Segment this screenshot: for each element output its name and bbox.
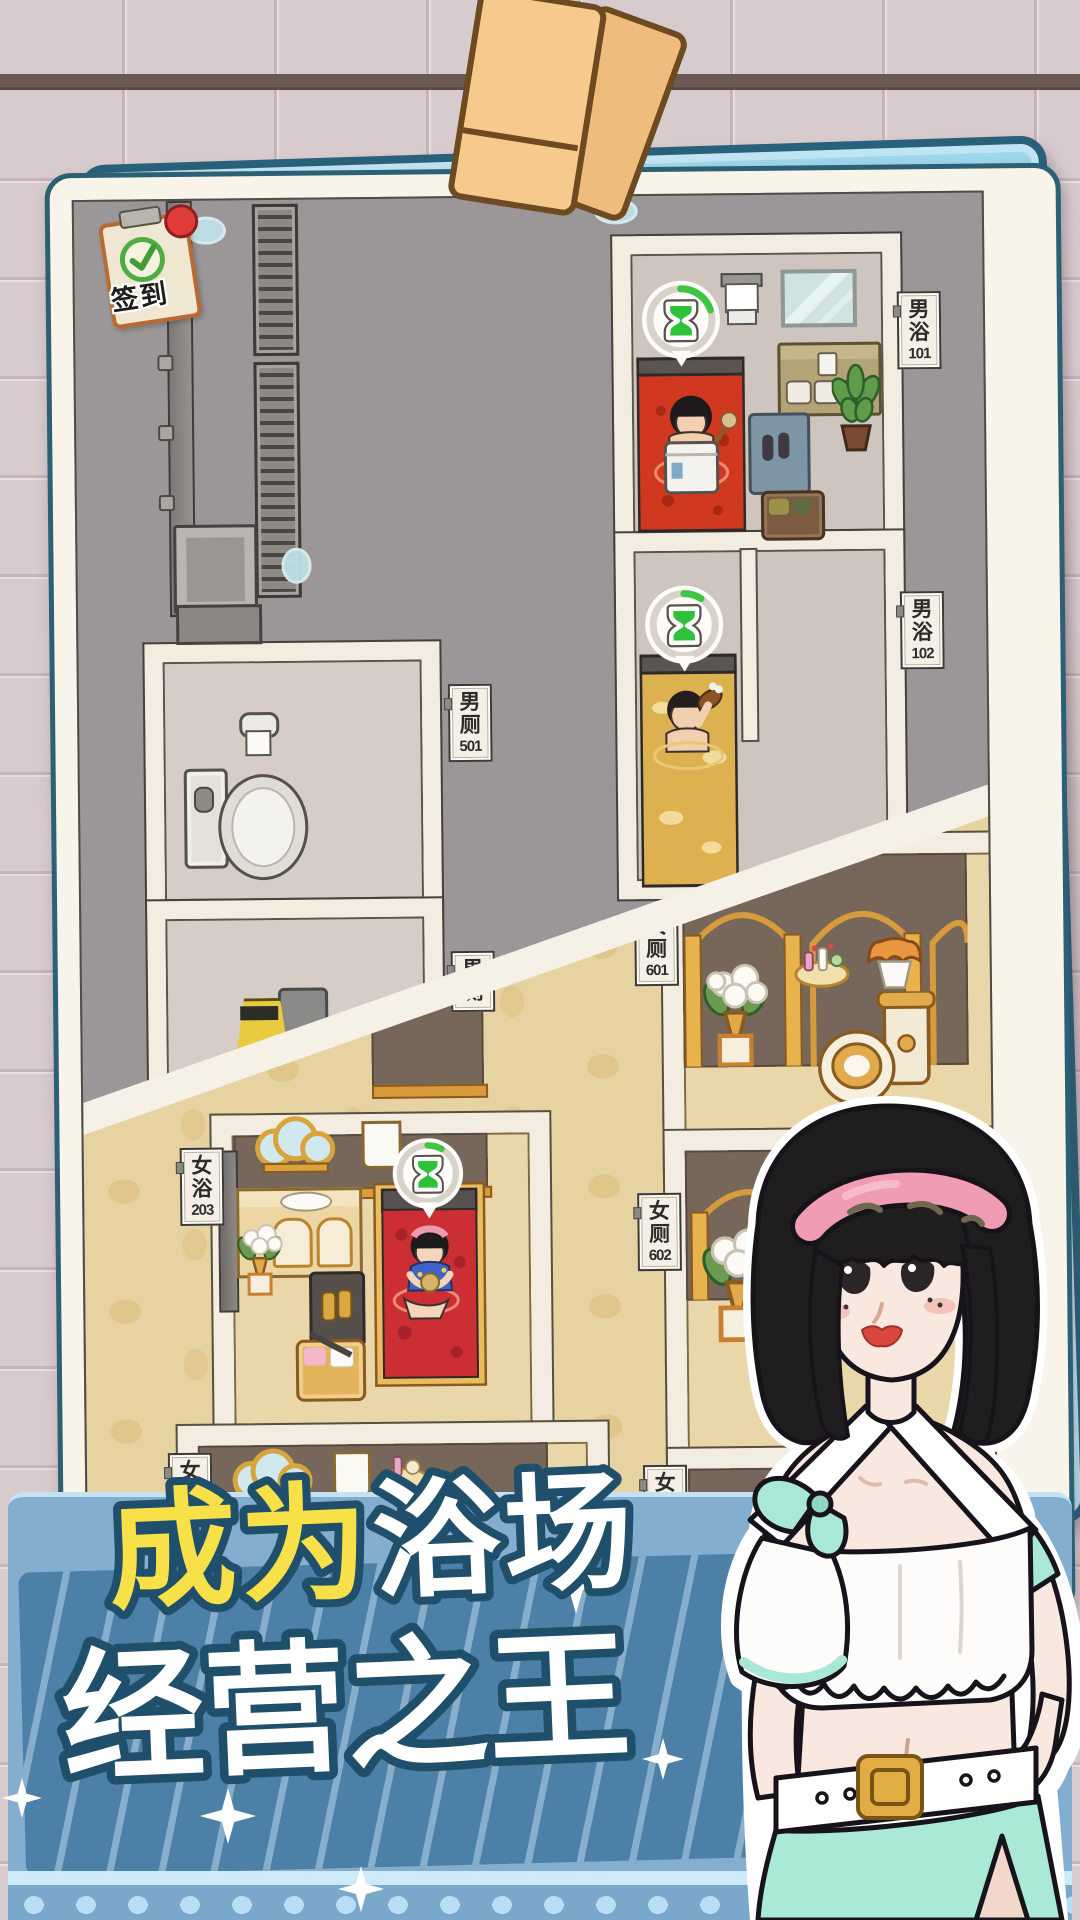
towel-canopy	[864, 935, 925, 996]
gold-slipper	[321, 1291, 336, 1321]
hourglass-icon	[671, 609, 697, 643]
shower-unit	[173, 524, 258, 615]
dark-slipper	[778, 433, 789, 459]
pink-towel	[304, 1347, 326, 1365]
water-puddle	[281, 548, 311, 584]
basket-towel	[769, 499, 789, 515]
yellow-bath-tub-man	[639, 647, 739, 888]
white-flower-vase	[696, 961, 775, 1074]
sign-in-badge[interactable]: 签到	[88, 200, 214, 331]
ornate-mirror	[249, 1115, 342, 1176]
room-sign-mens-bath-102: 男浴 102	[900, 591, 945, 670]
flush-button	[194, 787, 214, 813]
room-sign-womens-bath-203: 女浴 203	[180, 1148, 225, 1227]
hourglass-icon	[416, 1159, 440, 1190]
promo-girl-character	[610, 1090, 1080, 1920]
shower-base	[176, 604, 262, 645]
timer-bubble-101[interactable]	[640, 278, 723, 375]
dark-slipper	[762, 435, 773, 461]
red-bath-tub-man	[636, 350, 746, 533]
potted-plant	[831, 364, 880, 452]
perfume-shelf	[793, 940, 852, 997]
towel-basket	[761, 490, 826, 541]
room-sign-mens-bath-101: 男浴 101	[897, 291, 942, 370]
caution-sign-band	[240, 1006, 278, 1020]
toilet-bowl	[218, 774, 309, 881]
hanging-towel-fold	[727, 309, 757, 325]
title-part-yellow: 成为	[106, 1471, 376, 1625]
gold-trim	[372, 1084, 488, 1099]
basket-towel	[793, 498, 811, 514]
room-partition	[741, 550, 757, 740]
faucet-knob	[159, 495, 175, 511]
room-sign-mens-toilet-501: 男厕 501	[448, 684, 493, 763]
faucet-knob	[158, 425, 174, 441]
white-flower-vase	[234, 1222, 285, 1301]
floor-drain	[252, 204, 300, 356]
title-part-white: 浴场	[369, 1460, 639, 1614]
check-icon	[114, 231, 171, 288]
promo-title-line2: 经营之王	[40, 1591, 688, 1814]
toilet-paper-sheet	[245, 730, 271, 756]
timer-bubble-102[interactable]	[643, 583, 726, 680]
wall-mirror	[780, 269, 857, 328]
cabinet-door	[316, 1217, 353, 1267]
bench-slippers	[786, 380, 812, 404]
timer-bubble-203[interactable]	[391, 1136, 466, 1225]
game-ad-screen: 男浴 101 男浴 102 男厕 501 男厕	[0, 0, 1080, 1920]
faucet-knob	[157, 355, 173, 371]
clothespin	[441, 0, 712, 227]
hourglass-icon	[668, 304, 694, 338]
svg-text:经营之王: 经营之王	[59, 1617, 633, 1800]
gold-slipper	[337, 1289, 352, 1319]
